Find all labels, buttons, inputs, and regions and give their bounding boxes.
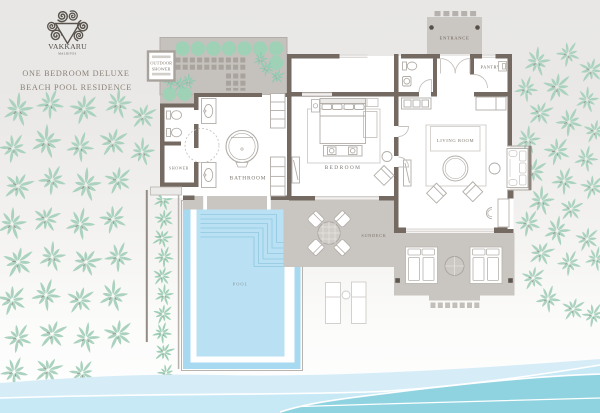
svg-text:SUNDECK: SUNDECK <box>361 233 386 238</box>
svg-text:SHOWER: SHOWER <box>152 67 171 72</box>
svg-text:MALDIVES: MALDIVES <box>58 52 76 55</box>
svg-text:ENTRANCE: ENTRANCE <box>439 36 469 41</box>
svg-text:VAKKARU: VAKKARU <box>48 42 87 51</box>
svg-text:OUTDOOR: OUTDOOR <box>150 61 172 66</box>
svg-text:LIVING ROOM: LIVING ROOM <box>437 138 474 143</box>
svg-text:ONE BEDROOM DELUXE: ONE BEDROOM DELUXE <box>22 69 129 78</box>
svg-text:BATHROOM: BATHROOM <box>230 176 267 182</box>
svg-text:BEACH POOL RESIDENCE: BEACH POOL RESIDENCE <box>20 83 132 92</box>
svg-text:POOL: POOL <box>233 282 248 287</box>
svg-text:SHOWER: SHOWER <box>169 167 189 171</box>
svg-text:PANTRY: PANTRY <box>481 65 501 70</box>
svg-text:BEDROOM: BEDROOM <box>325 165 362 171</box>
